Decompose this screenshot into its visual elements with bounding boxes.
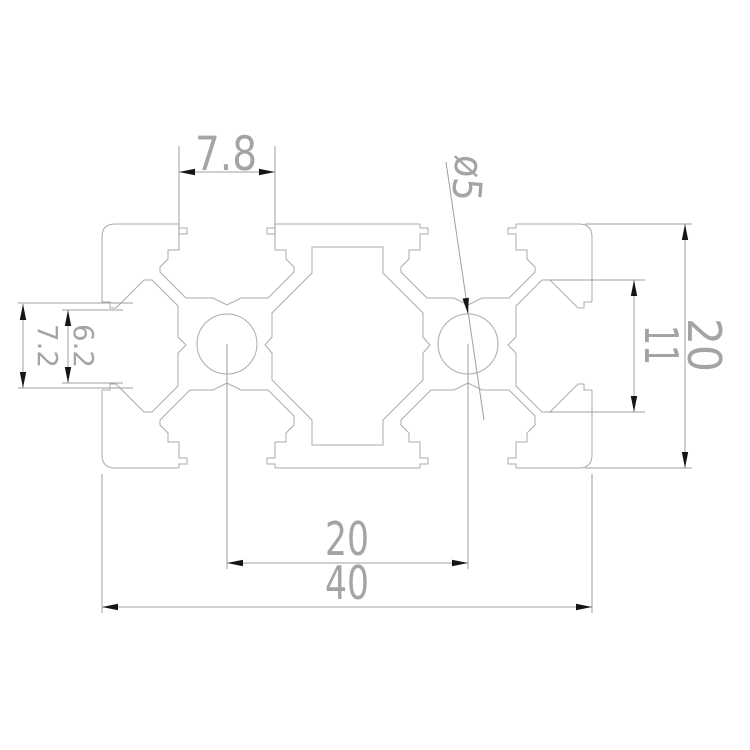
arrow-11-top — [631, 280, 637, 296]
dim-left-slot-inner-label: 6.2 — [67, 324, 100, 368]
dim-left-slot-outer-label: 7.2 — [31, 324, 64, 368]
arrow-20-right-bottom — [682, 452, 688, 468]
arrow-6-2-bottom — [65, 367, 71, 383]
dim-profile-width-label: 40 — [325, 556, 369, 610]
arrow-7-8-left — [179, 169, 195, 175]
dim-profile-height-label: 20 — [677, 318, 731, 372]
profile-outline — [102, 224, 592, 468]
top-slot-right — [401, 224, 535, 305]
dimension-labels: 7.8 ø5 7.2 6.2 11 20 20 40 — [31, 127, 731, 610]
profile-geometry — [102, 224, 592, 468]
arrow-20-bottom-left — [227, 560, 243, 566]
profile-drawing: 7.8 ø5 7.2 6.2 11 20 20 40 — [0, 0, 750, 750]
arrow-20-right-top — [682, 224, 688, 240]
dim-hole-diameter-label: ø5 — [442, 153, 492, 203]
arrow-hole-leader — [462, 298, 471, 315]
arrow-40-left — [102, 604, 118, 610]
arrow-11-bottom — [631, 396, 637, 412]
arrow-40-right — [576, 604, 592, 610]
top-slot-left — [160, 224, 294, 305]
dim-top-slot-width-label: 7.8 — [195, 127, 257, 182]
cad-drawing-canvas: 7.8 ø5 7.2 6.2 11 20 20 40 — [0, 0, 750, 750]
right-end-slot — [508, 280, 592, 412]
arrow-20-bottom-right — [452, 560, 468, 566]
dim-11-lines — [545, 280, 645, 412]
left-end-slot — [102, 280, 186, 412]
arrow-7-2-bottom — [20, 372, 26, 388]
arrow-7-8-right — [259, 169, 275, 175]
arrow-7-2-top — [20, 304, 26, 320]
